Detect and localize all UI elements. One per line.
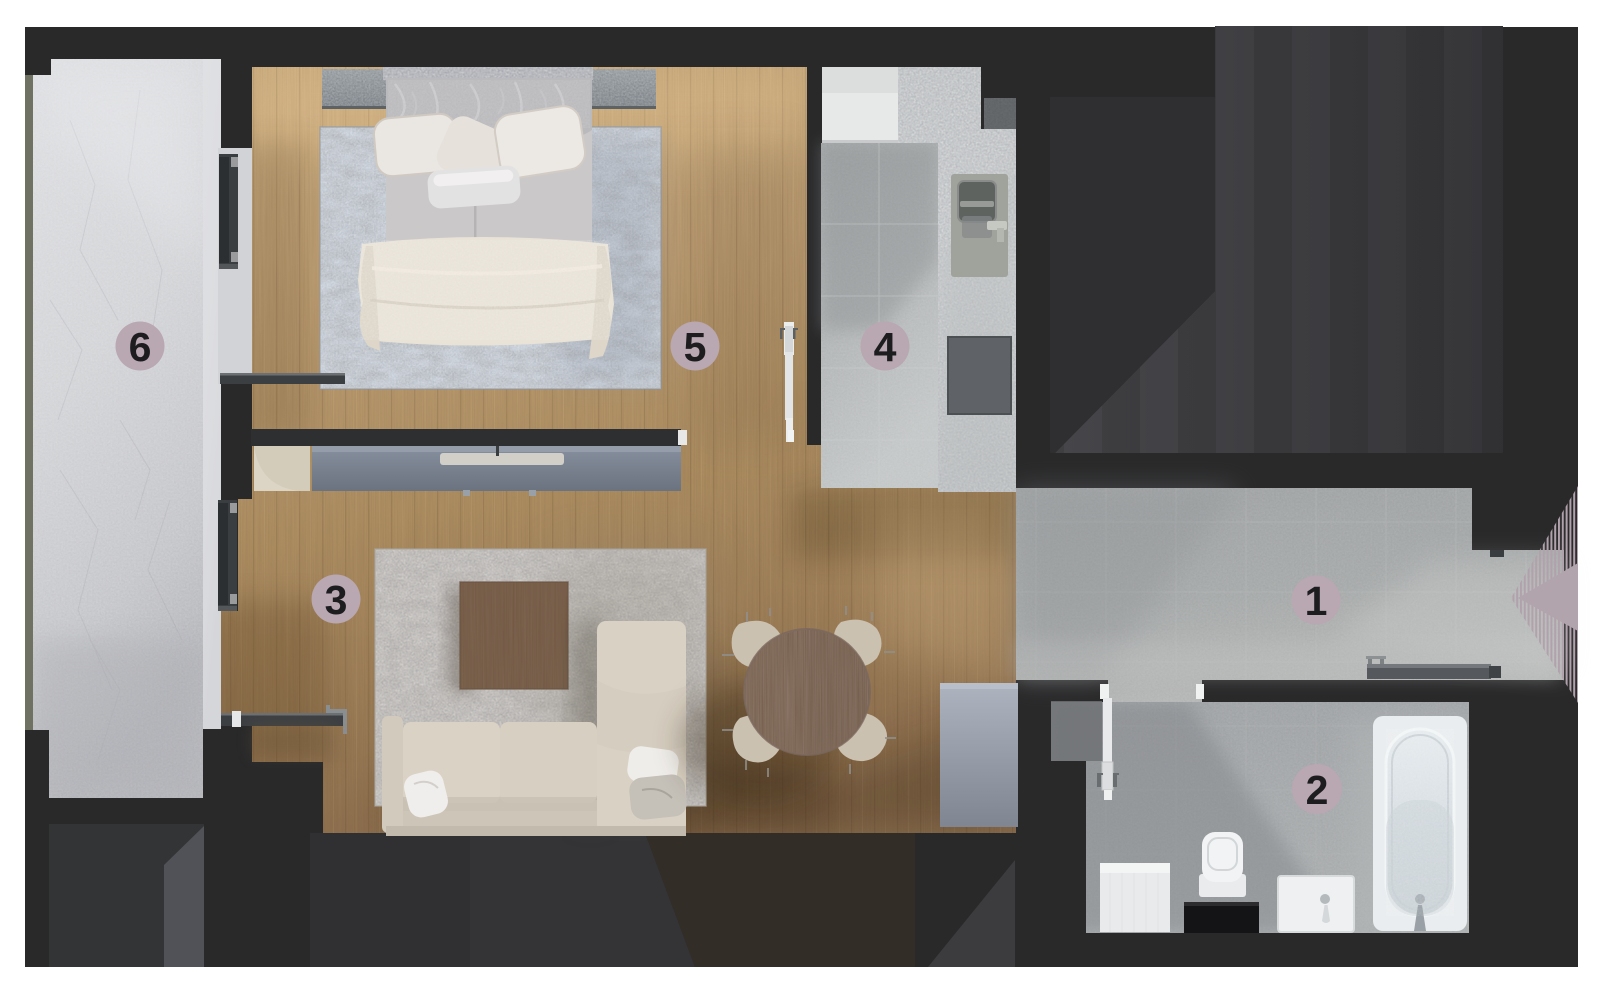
svg-text:1: 1	[1305, 578, 1328, 624]
svg-text:4: 4	[874, 324, 897, 370]
svg-text:6: 6	[129, 324, 152, 370]
svg-text:3: 3	[325, 577, 348, 623]
svg-text:2: 2	[1306, 767, 1329, 813]
svg-text:5: 5	[684, 324, 707, 370]
